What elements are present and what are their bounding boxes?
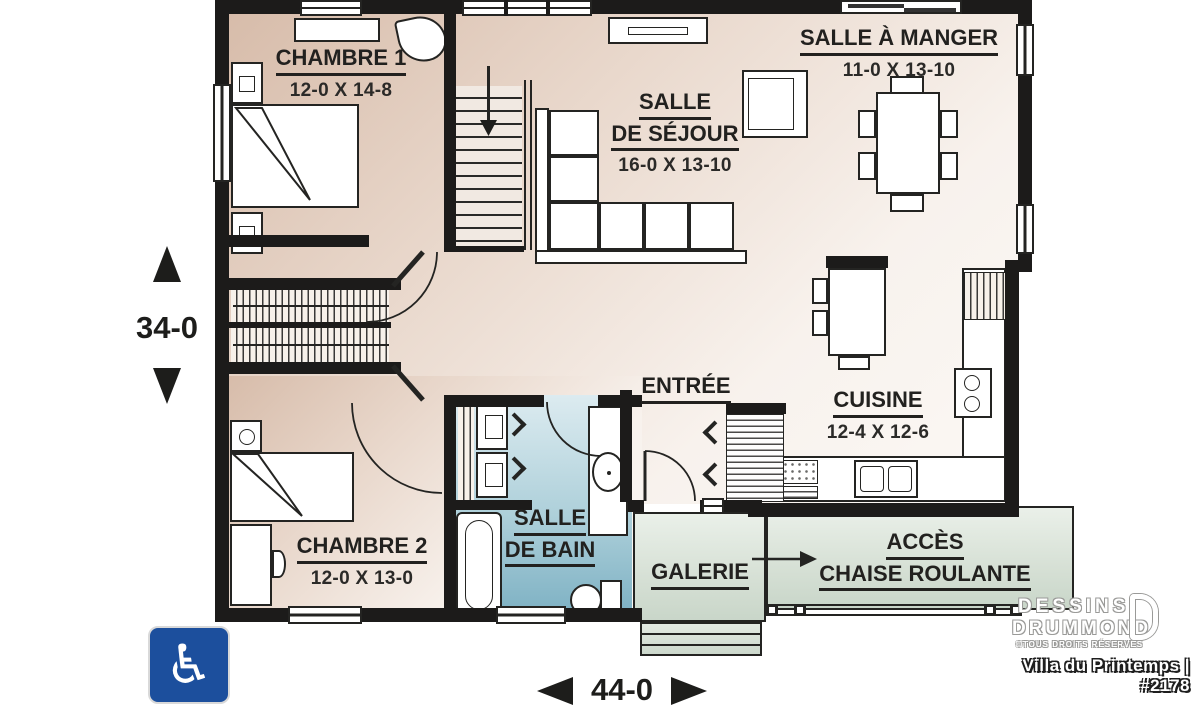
room-size: 16-0 X 13-10 (592, 155, 758, 177)
tv-console-shelf (628, 27, 688, 35)
island-stool (812, 310, 828, 336)
nightstand (230, 420, 262, 452)
room-name: CHAISE ROULANTE (819, 560, 1030, 592)
window (1016, 24, 1034, 76)
room-name: SALLE À MANGER (800, 24, 998, 56)
kitchen-sink (854, 460, 918, 498)
island-stool (838, 356, 870, 370)
dryer-door (485, 463, 503, 487)
stove-burner (964, 375, 980, 391)
room-name: CHAMBRE 2 (297, 532, 428, 564)
closet-hanging-clothes (231, 290, 389, 322)
nightstand (231, 212, 263, 254)
sofa-cushion (599, 202, 644, 250)
entry-closet (726, 414, 784, 502)
room-label-chambre2: CHAMBRE 2 12-0 X 13-0 (272, 532, 452, 590)
window-divider (546, 0, 550, 16)
dining-chair (940, 110, 958, 138)
stair-direction-arrow (487, 66, 490, 122)
plan-title: Villa du Printemps | #2178 (1000, 656, 1190, 696)
window (213, 84, 231, 182)
room-name: DE BAIN (505, 536, 595, 568)
dimension-arrow-right (671, 677, 707, 705)
stove (954, 368, 992, 418)
room-label-acces-chaise-roulante: ACCÈS CHAISE ROULANTE (808, 528, 1042, 591)
wall (444, 395, 544, 407)
bed-chambre2 (230, 452, 354, 522)
window (288, 606, 362, 624)
brand-d-glyph (1130, 594, 1158, 640)
overall-depth-dimension: 34-0 (112, 310, 222, 346)
dining-table (876, 92, 940, 194)
window-sash (904, 8, 956, 12)
wheelchair-icon: ♿ (165, 638, 213, 692)
dining-chair (940, 152, 958, 180)
room-label-chambre1: CHAMBRE 1 12-0 X 14-8 (252, 44, 430, 102)
island-stool (812, 278, 828, 304)
room-label-salle-de-sejour: SALLE DE SÉJOUR 16-0 X 13-10 (592, 88, 758, 177)
window (702, 498, 724, 514)
washer (476, 404, 508, 450)
window (300, 0, 362, 16)
laundry-closet-shelf (458, 402, 474, 500)
overall-width-dimension: 44-0 (577, 672, 667, 708)
window-sash (848, 4, 904, 8)
stove-burner (964, 396, 980, 412)
room-name: GALERIE (651, 558, 749, 590)
wall (229, 278, 401, 290)
refrigerator (964, 272, 1006, 320)
wall (620, 390, 632, 502)
wall (229, 322, 391, 328)
wheelchair-accessible-badge: ♿ (148, 626, 230, 704)
room-label-entree: ENTRÉE (632, 372, 740, 404)
sink-basin (860, 466, 884, 492)
room-size: 12-0 X 14-8 (252, 80, 430, 102)
room-name: CHAMBRE 1 (276, 44, 407, 76)
room-name: ACCÈS (886, 528, 963, 560)
room-name: CUISINE (833, 386, 922, 418)
dryer (476, 452, 508, 498)
railing-post (794, 604, 806, 616)
wall (215, 608, 642, 622)
wall (748, 503, 1019, 517)
room-size: 12-0 X 13-0 (272, 568, 452, 590)
room-label-salle-a-manger: SALLE À MANGER 11-0 X 13-10 (798, 24, 1000, 82)
wall (229, 235, 369, 247)
bed-chambre1 (231, 104, 359, 208)
dresser (294, 18, 380, 42)
wall (444, 14, 456, 252)
nightstand-lamp (239, 429, 255, 445)
dining-chair (890, 194, 924, 212)
room-name: SALLE (514, 504, 586, 536)
wall (229, 362, 401, 374)
window (496, 606, 566, 624)
window-divider (504, 0, 508, 16)
room-name: DE SÉJOUR (611, 120, 738, 152)
sofa-back (535, 108, 549, 264)
stair-bottom-edge (456, 246, 524, 252)
room-label-galerie: GALERIE (644, 558, 756, 590)
kitchen-island (828, 268, 886, 356)
dining-chair (858, 110, 876, 138)
sofa-back (535, 250, 747, 264)
window (1016, 204, 1034, 254)
wall (826, 256, 888, 268)
window (840, 0, 962, 14)
room-label-cuisine: CUISINE 12-4 X 12-6 (800, 386, 956, 444)
floor-plan: CHAMBRE 1 12-0 X 14-8 SALLE À MANGER 11-… (0, 0, 1200, 711)
sofa-cushion (689, 202, 734, 250)
room-size: 11-0 X 13-10 (798, 60, 1000, 82)
room-label-salle-de-bain: SALLE DE BAIN (486, 504, 614, 567)
dimension-arrow-up (153, 246, 181, 282)
wall (726, 403, 786, 414)
closet-hanging-clothes (231, 328, 389, 362)
washer-door (485, 415, 503, 439)
porch-steps (640, 622, 762, 656)
brand-copyright: ©TOUS DROITS RÉSERVÉS (1016, 640, 1143, 649)
sink-drain (607, 471, 611, 475)
stair-handrail (524, 80, 532, 250)
wall (1005, 260, 1032, 272)
sofa-cushion (549, 202, 599, 250)
sofa-cushion (644, 202, 689, 250)
room-size: 12-4 X 12-6 (800, 422, 956, 444)
railing-post (766, 604, 778, 616)
room-name: SALLE (639, 88, 711, 120)
sink-basin (888, 466, 912, 492)
room-name: ENTRÉE (641, 372, 730, 404)
wall (1005, 272, 1019, 517)
brand-name-line1: DESSINS (1018, 596, 1129, 618)
dining-chair (858, 152, 876, 180)
dimension-arrow-down (153, 368, 181, 404)
desk (230, 524, 272, 606)
dimension-arrow-left (537, 677, 573, 705)
window (462, 0, 592, 16)
brand-logo: DESSINS DRUMMOND ©TOUS DROITS RÉSERVÉS (990, 594, 1200, 656)
tv-console (608, 17, 708, 44)
